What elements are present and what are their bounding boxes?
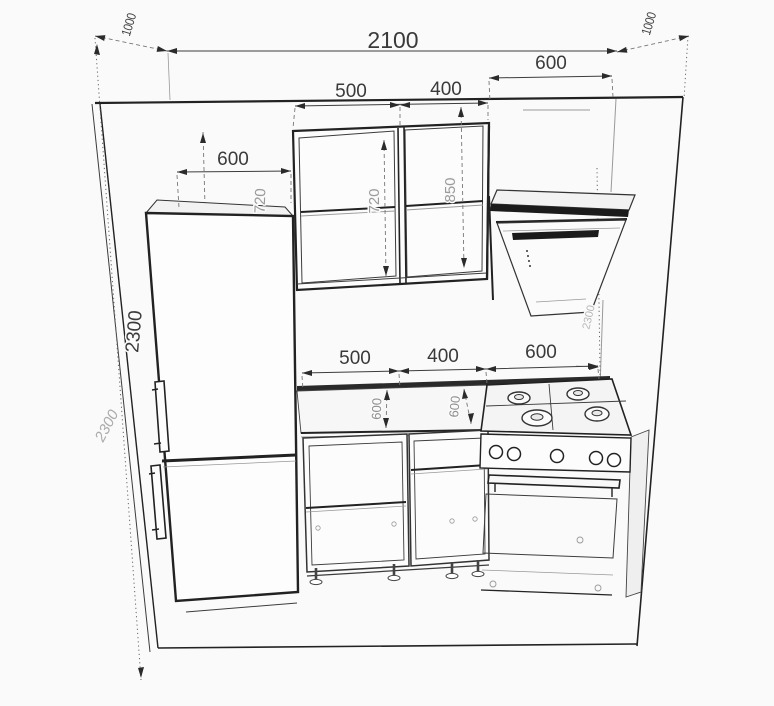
- kitchen-drawing-canvas: 2100 1000 1000 600: [0, 0, 774, 706]
- dim-label-upper-1: 500: [335, 81, 367, 102]
- dim-left-wall-depth: 1000: [94, 11, 167, 54]
- range-hood: [489, 190, 635, 316]
- stove-knob: [490, 446, 503, 459]
- wall-top-edge: [95, 97, 683, 103]
- stove-knob: [608, 454, 621, 467]
- stove-knob: [551, 450, 564, 463]
- stove-knob: [590, 452, 603, 465]
- dim-wall-height-right: 2300: [576, 304, 599, 370]
- dim-label-left-depth: 1000: [118, 11, 139, 38]
- fridge-lower-door-handle: [151, 465, 166, 539]
- burner: [508, 392, 530, 404]
- fridge-base-line: [186, 603, 297, 612]
- dim-label-hood-width: 600: [535, 53, 567, 74]
- stove-bottom-edge: [481, 590, 612, 595]
- stove-cooktop: [481, 379, 631, 435]
- dim-right-wall-depth: 1000: [616, 10, 689, 55]
- dim-label-counter-depth-2: 600: [446, 395, 463, 418]
- dim-label-wall-height-sketch: 2300: [91, 407, 122, 446]
- dim-label-base-1: 500: [339, 348, 371, 369]
- fridge-front-face: [146, 213, 298, 601]
- dim-label-wall-height: 2300: [122, 310, 147, 354]
- fridge: [146, 200, 298, 612]
- base-cabinets: [303, 430, 489, 585]
- oven-handle: [488, 475, 620, 488]
- wall-left-outer: [92, 104, 150, 652]
- oven-drawer-line: [482, 570, 613, 575]
- floor-line: [158, 644, 637, 648]
- stove-screw-marks: [490, 537, 601, 591]
- stove-knob: [508, 448, 521, 461]
- kitchen-drawing-page: 2100 1000 1000 600: [0, 0, 774, 706]
- burner: [585, 407, 609, 421]
- dim-label-stove-width: 600: [525, 342, 557, 363]
- gas-stove: [480, 379, 649, 597]
- dim-label-upper-height-2: 850: [442, 177, 459, 202]
- construction-line-right-top: [684, 36, 688, 99]
- dim-label-base-2: 400: [427, 346, 459, 367]
- dim-label-upper-height-1: 720: [366, 188, 383, 213]
- dim-fridge-width: 600: [177, 149, 291, 208]
- dim-label-counter-depth-1: 600: [369, 398, 385, 420]
- dim-label-upper-height-edge: 720: [252, 188, 270, 214]
- construction-line-left: [95, 38, 141, 680]
- burner: [522, 410, 552, 426]
- burner: [567, 388, 589, 400]
- wall-cabinets: [293, 123, 489, 290]
- dim-hood-width: 600: [489, 53, 613, 102]
- wall-right-outer: [637, 97, 683, 646]
- dim-label-total-width: 2100: [367, 27, 418, 53]
- cabinet-foot: [472, 560, 484, 577]
- oven-door: [483, 494, 617, 558]
- wall-left-corner: [100, 104, 158, 648]
- cabinet-foot: [446, 562, 458, 579]
- dim-label-fridge-width: 600: [217, 149, 249, 170]
- hood-left-edge: [489, 196, 493, 300]
- wall-right-corner-upper: [611, 99, 616, 192]
- dim-upper-cabinets: 500 400: [293, 79, 488, 128]
- dim-label-right-depth: 1000: [638, 10, 659, 37]
- dim-label-upper-2: 400: [430, 79, 462, 100]
- base-cabinet-2: [409, 430, 489, 566]
